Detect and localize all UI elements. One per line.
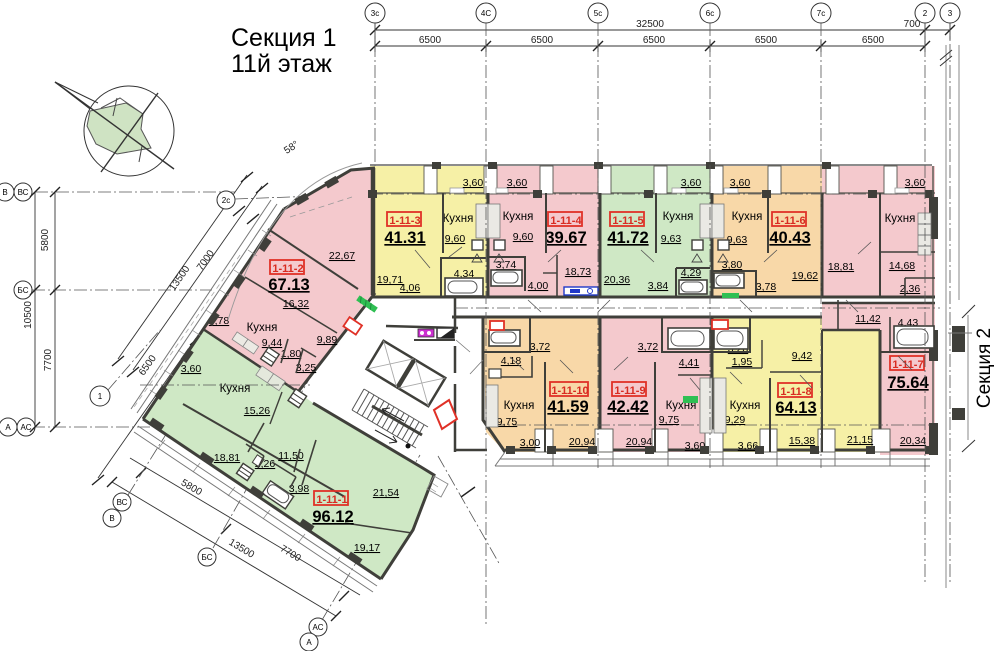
svg-text:4,06: 4,06 xyxy=(400,282,421,294)
svg-text:39.67: 39.67 xyxy=(545,229,586,247)
svg-text:9,42: 9,42 xyxy=(792,350,813,362)
svg-text:Кухня: Кухня xyxy=(247,322,278,334)
svg-text:15,38: 15,38 xyxy=(789,435,815,447)
svg-text:А: А xyxy=(306,638,312,647)
svg-text:А: А xyxy=(5,423,11,432)
svg-text:5800: 5800 xyxy=(40,228,51,251)
svg-text:3,60: 3,60 xyxy=(905,177,926,189)
svg-text:3,60: 3,60 xyxy=(507,177,528,189)
svg-text:9,60: 9,60 xyxy=(513,231,534,243)
svg-text:42.42: 42.42 xyxy=(607,398,648,416)
svg-text:Кухня: Кухня xyxy=(504,400,535,412)
svg-text:9,60: 9,60 xyxy=(445,233,466,245)
svg-text:3,78: 3,78 xyxy=(756,281,777,293)
svg-text:1-11-4: 1-11-4 xyxy=(550,215,582,227)
svg-text:1-11-10: 1-11-10 xyxy=(551,385,588,397)
svg-text:22,67: 22,67 xyxy=(329,250,355,262)
svg-text:3,60: 3,60 xyxy=(181,363,202,375)
svg-text:3,00: 3,00 xyxy=(520,437,541,449)
svg-text:1-11-8: 1-11-8 xyxy=(780,386,811,398)
svg-text:2с: 2с xyxy=(222,196,230,205)
svg-text:Секция 1: Секция 1 xyxy=(231,24,337,52)
svg-text:3,84: 3,84 xyxy=(648,280,669,292)
svg-text:ВС: ВС xyxy=(18,188,29,197)
svg-text:3,72: 3,72 xyxy=(638,341,659,353)
svg-text:20,36: 20,36 xyxy=(604,274,630,286)
svg-text:ВС: ВС xyxy=(117,498,128,507)
svg-text:6500: 6500 xyxy=(419,35,442,46)
svg-text:5с: 5с xyxy=(594,9,602,18)
svg-text:18,73: 18,73 xyxy=(565,266,591,278)
svg-text:11,42: 11,42 xyxy=(855,313,881,325)
svg-text:19,17: 19,17 xyxy=(354,542,380,554)
svg-text:4С: 4С xyxy=(481,9,491,18)
svg-text:6с: 6с xyxy=(706,9,714,18)
svg-text:21,54: 21,54 xyxy=(373,487,399,499)
svg-text:3,60: 3,60 xyxy=(463,177,484,189)
svg-text:18,81: 18,81 xyxy=(214,452,240,464)
svg-text:15,26: 15,26 xyxy=(244,405,270,417)
svg-text:1-11-5: 1-11-5 xyxy=(612,215,643,227)
svg-text:1-11-3: 1-11-3 xyxy=(389,215,420,227)
svg-text:Кухня: Кухня xyxy=(503,211,534,223)
svg-text:1: 1 xyxy=(98,392,103,401)
svg-text:БС: БС xyxy=(18,286,29,295)
svg-text:3,80: 3,80 xyxy=(722,259,743,271)
svg-text:10500: 10500 xyxy=(23,301,34,329)
svg-text:АС: АС xyxy=(313,623,324,632)
svg-text:3,60: 3,60 xyxy=(730,177,751,189)
svg-text:Кухня: Кухня xyxy=(443,213,474,225)
svg-text:4,41: 4,41 xyxy=(679,357,700,369)
svg-text:11й этаж: 11й этаж xyxy=(231,50,332,78)
svg-text:6500: 6500 xyxy=(862,35,885,46)
svg-text:16,32: 16,32 xyxy=(283,298,309,310)
svg-text:В: В xyxy=(2,188,7,197)
svg-text:67.13: 67.13 xyxy=(268,276,309,294)
svg-text:20,34: 20,34 xyxy=(900,435,926,447)
svg-text:41.72: 41.72 xyxy=(607,229,648,247)
svg-text:1-11-7: 1-11-7 xyxy=(892,359,923,371)
svg-text:9,44: 9,44 xyxy=(262,337,283,349)
svg-text:3с: 3с xyxy=(371,9,379,18)
svg-text:2,36: 2,36 xyxy=(900,283,921,295)
svg-text:18,81: 18,81 xyxy=(828,261,854,273)
svg-text:6500: 6500 xyxy=(755,35,778,46)
svg-text:Секция 2: Секция 2 xyxy=(974,328,995,408)
svg-text:7700: 7700 xyxy=(43,348,54,371)
svg-text:19,62: 19,62 xyxy=(792,270,818,282)
svg-text:9,63: 9,63 xyxy=(661,233,682,245)
svg-text:21,15: 21,15 xyxy=(847,434,873,446)
svg-text:В: В xyxy=(109,514,114,523)
svg-text:64.13: 64.13 xyxy=(775,399,816,417)
svg-text:41.59: 41.59 xyxy=(547,398,588,416)
svg-text:9,89: 9,89 xyxy=(317,334,338,346)
svg-text:6500: 6500 xyxy=(643,35,666,46)
svg-text:7с: 7с xyxy=(817,9,825,18)
svg-text:3: 3 xyxy=(948,9,953,18)
svg-text:Кухня: Кухня xyxy=(730,400,761,412)
svg-text:9,75: 9,75 xyxy=(659,414,680,426)
svg-text:4,00: 4,00 xyxy=(528,280,549,292)
svg-text:9,29: 9,29 xyxy=(725,414,746,426)
svg-text:3,72: 3,72 xyxy=(530,341,551,353)
svg-text:6500: 6500 xyxy=(531,35,554,46)
svg-text:1-11-1: 1-11-1 xyxy=(316,494,347,506)
svg-text:АС: АС xyxy=(21,423,32,432)
svg-text:1,95: 1,95 xyxy=(732,356,753,368)
svg-text:75.64: 75.64 xyxy=(887,374,929,392)
svg-text:1-11-6: 1-11-6 xyxy=(774,215,805,227)
svg-text:96.12: 96.12 xyxy=(312,508,353,526)
svg-text:Кухня: Кухня xyxy=(663,211,694,223)
svg-text:32500: 32500 xyxy=(636,19,664,30)
svg-text:3,60: 3,60 xyxy=(681,177,702,189)
svg-text:41.31: 41.31 xyxy=(384,229,425,247)
svg-text:2: 2 xyxy=(923,9,928,18)
svg-text:9,75: 9,75 xyxy=(497,416,518,428)
svg-text:БС: БС xyxy=(202,553,213,562)
svg-text:1-11-9: 1-11-9 xyxy=(614,385,645,397)
svg-text:40.43: 40.43 xyxy=(769,229,810,247)
svg-text:Кухня: Кухня xyxy=(885,213,916,225)
svg-text:9,63: 9,63 xyxy=(727,234,748,246)
svg-text:Кухня: Кухня xyxy=(732,211,763,223)
svg-text:14,68: 14,68 xyxy=(889,260,915,272)
svg-text:1-11-2: 1-11-2 xyxy=(272,263,303,275)
